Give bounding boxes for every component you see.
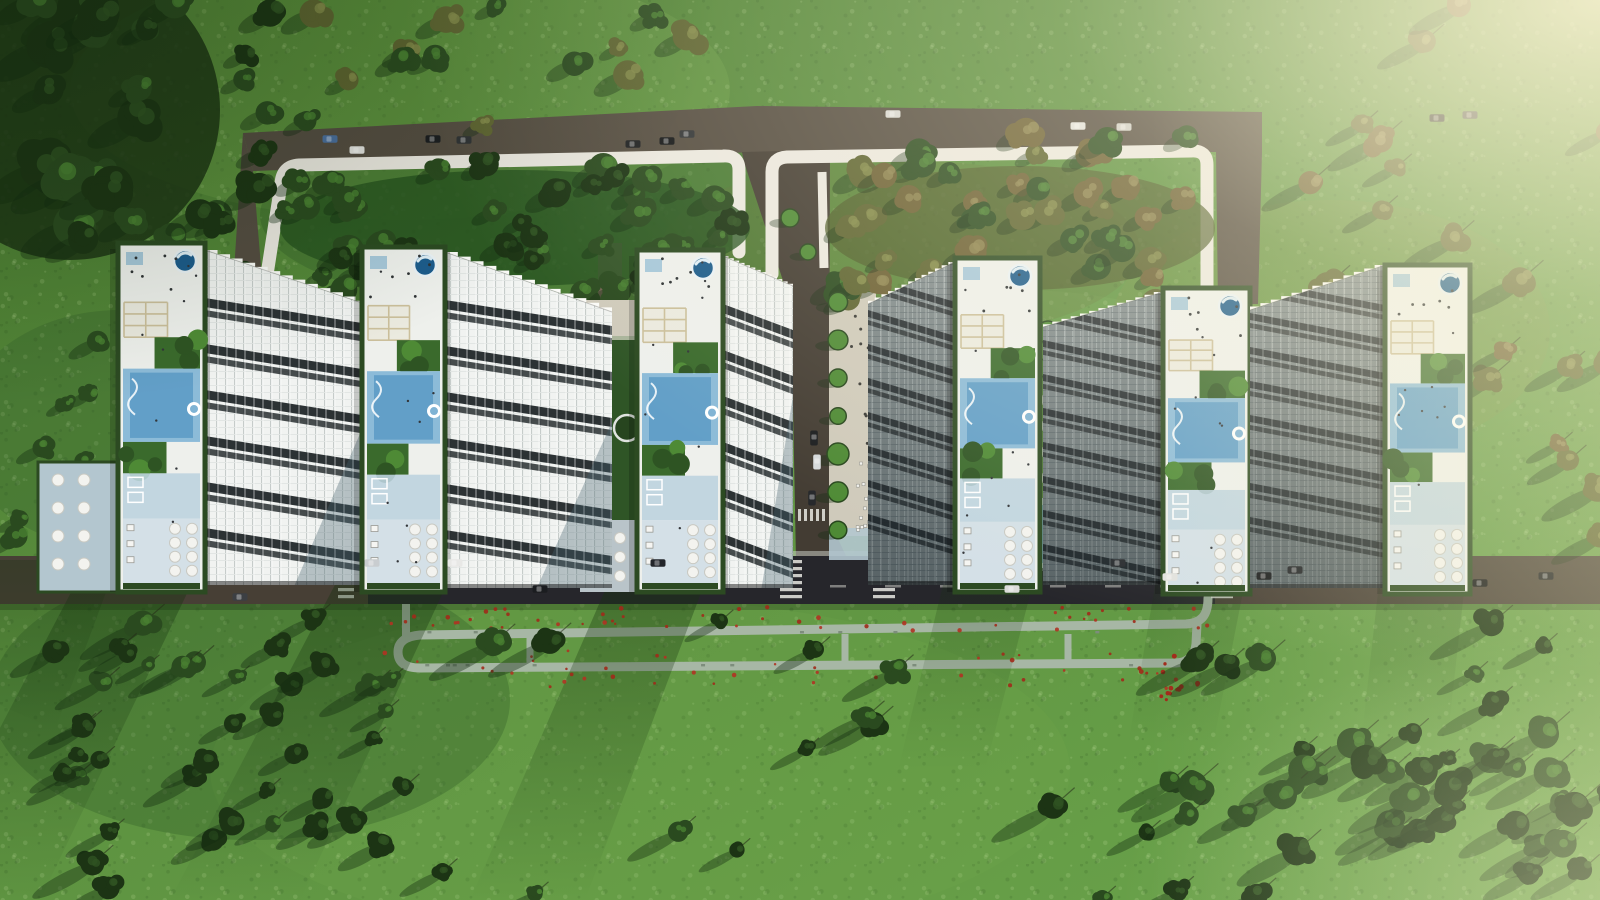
- aerial-render-stage: [0, 0, 1600, 900]
- lighting-effects-layer: [0, 0, 1600, 900]
- corner-glare: [0, 0, 1600, 900]
- scene-aerial-view: [0, 0, 1600, 900]
